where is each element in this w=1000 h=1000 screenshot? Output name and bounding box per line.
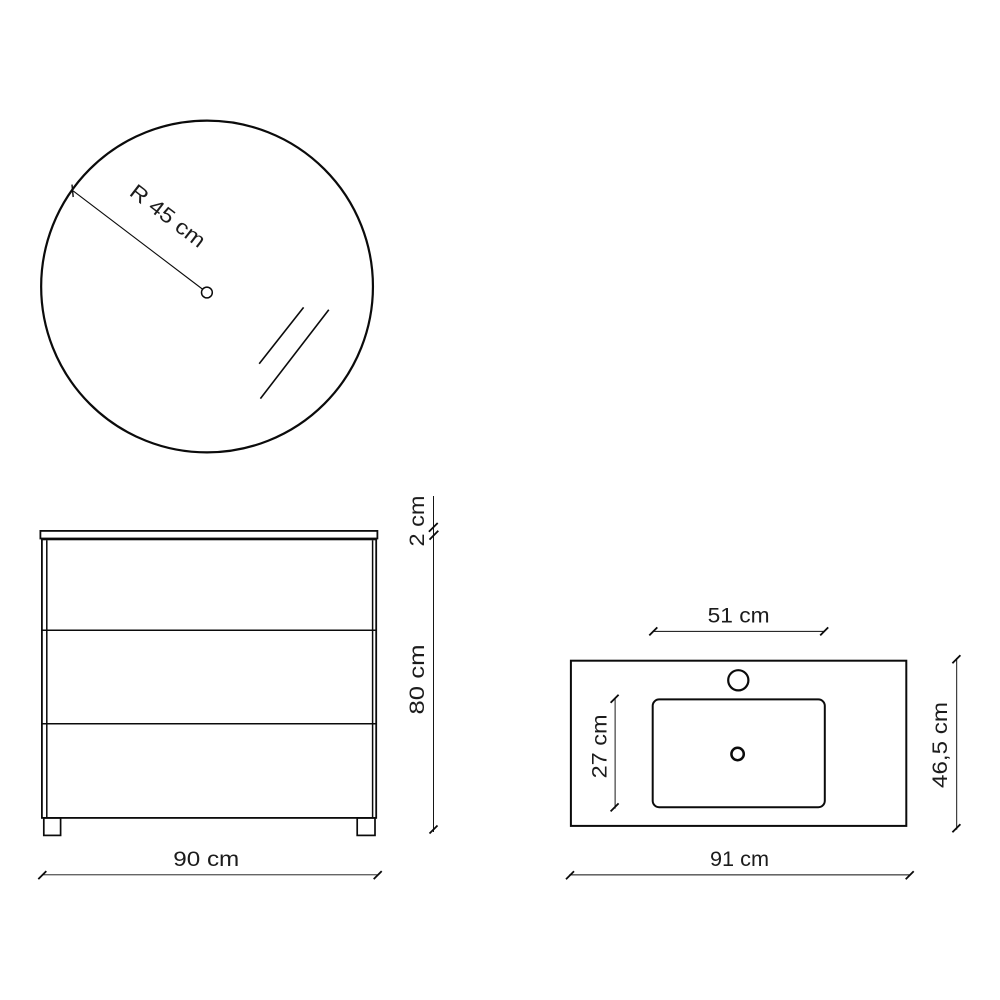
svg-text:90 cm: 90 cm (173, 848, 239, 871)
svg-text:2 cm: 2 cm (406, 496, 429, 547)
svg-text:91 cm: 91 cm (710, 848, 769, 871)
svg-text:R 45 cm: R 45 cm (125, 180, 210, 252)
svg-text:80 cm: 80 cm (406, 645, 429, 715)
svg-text:51 cm: 51 cm (708, 605, 770, 628)
svg-text:46,5 cm: 46,5 cm (929, 702, 952, 788)
svg-text:27 cm: 27 cm (589, 714, 612, 778)
